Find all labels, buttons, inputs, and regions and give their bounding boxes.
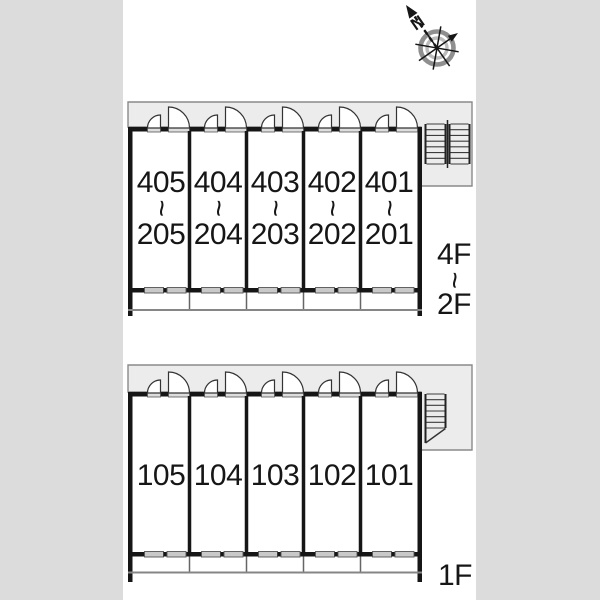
window-mullion <box>335 288 339 293</box>
room-divider-wall <box>302 131 306 288</box>
room-label-bottom: 201 <box>361 223 417 247</box>
window-mullion <box>278 288 282 293</box>
balcony-stub <box>246 557 248 572</box>
right-wall <box>418 127 423 316</box>
room-label-top: 402 <box>304 171 360 195</box>
window-mullion <box>278 552 282 557</box>
window-mullion <box>221 552 225 557</box>
window-bar <box>316 552 335 558</box>
window-bar <box>316 288 335 294</box>
window-bar <box>202 552 221 558</box>
range-tilde: ~ <box>320 196 344 220</box>
window-bar <box>281 288 300 294</box>
window-bar <box>281 552 300 558</box>
room-divider-wall <box>359 131 363 288</box>
window-bar <box>395 288 414 294</box>
window-mullion <box>221 288 225 293</box>
floor-label-1f: 1F <box>427 564 483 588</box>
balcony-stub <box>360 557 362 572</box>
range-tilde: ~ <box>206 196 230 220</box>
room-label-bottom: 205 <box>133 223 189 247</box>
balcony-stub <box>360 293 362 310</box>
balcony-stub <box>303 293 305 310</box>
window-mullion <box>392 552 396 557</box>
window-bar <box>167 288 186 294</box>
balcony-rail <box>128 572 422 574</box>
window-bar <box>259 288 278 294</box>
window-bar <box>395 552 414 558</box>
room-label-bottom: 204 <box>190 223 246 247</box>
room-label: 104 <box>190 464 246 488</box>
upper-building <box>128 102 472 316</box>
room-label: 101 <box>361 464 417 488</box>
floor-range-top: 4F <box>426 243 482 267</box>
window-mullion <box>392 288 396 293</box>
window-mullion <box>164 552 168 557</box>
room-label: 105 <box>133 464 189 488</box>
balcony-stub <box>189 557 191 572</box>
balcony-stub <box>246 293 248 310</box>
window-bar <box>167 552 186 558</box>
floorplan-canvas: N 405 ~ 205 404 ~ 204 403 ~ 203 402 ~ 20… <box>0 0 600 600</box>
balcony-stub <box>189 293 191 310</box>
window-bar <box>373 288 392 294</box>
window-bar <box>224 552 243 558</box>
room-label: 103 <box>247 464 303 488</box>
room-label-top: 405 <box>133 171 189 195</box>
left-wall <box>128 127 133 316</box>
window-mullion <box>164 288 168 293</box>
window-bar <box>338 552 357 558</box>
room-divider-wall <box>188 131 192 288</box>
balcony-rail <box>128 309 422 311</box>
floor-range-bottom: 2F <box>426 293 482 317</box>
window-bar <box>224 288 243 294</box>
floorplan-drawing: N <box>0 0 600 600</box>
room-divider-wall <box>245 131 249 288</box>
range-tilde: ~ <box>263 196 287 220</box>
balcony-stub <box>303 557 305 572</box>
window-bar <box>338 288 357 294</box>
room-label-top: 404 <box>190 171 246 195</box>
window-bar <box>259 552 278 558</box>
room-label-bottom: 203 <box>247 223 303 247</box>
window-bar <box>145 288 164 294</box>
compass-icon: N <box>406 5 459 70</box>
window-bar <box>202 288 221 294</box>
range-tilde: ~ <box>377 196 401 220</box>
window-mullion <box>335 552 339 557</box>
window-bar <box>145 552 164 558</box>
room-label: 102 <box>304 464 360 488</box>
window-bar <box>373 552 392 558</box>
room-label-bottom: 202 <box>304 223 360 247</box>
room-label-top: 401 <box>361 171 417 195</box>
range-tilde: ~ <box>149 196 173 220</box>
room-label-top: 403 <box>247 171 303 195</box>
